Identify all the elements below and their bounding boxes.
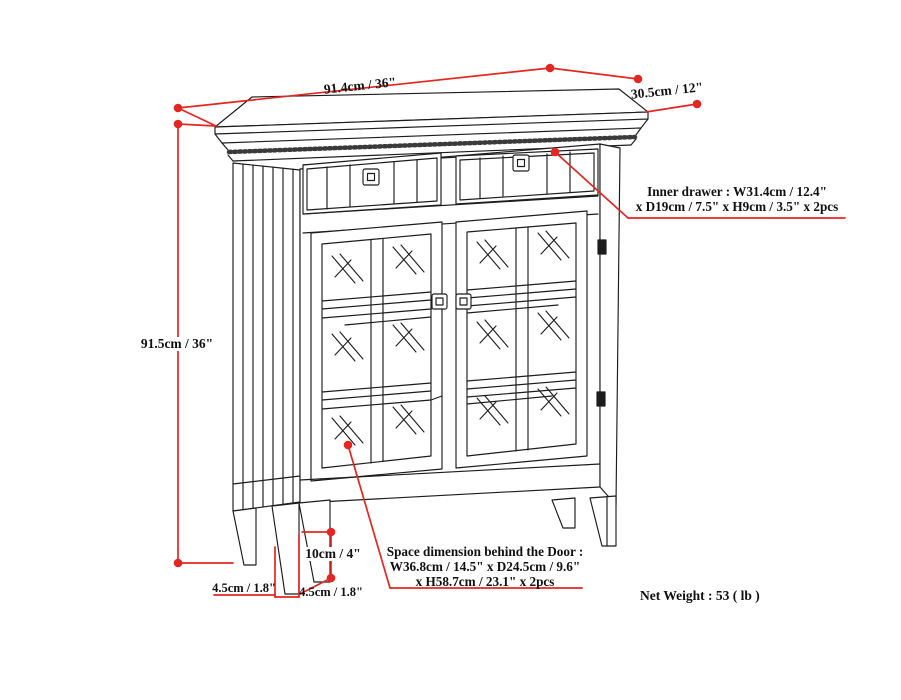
cabinet (215, 89, 648, 594)
inner-drawer-line2: x D19cm / 7.5" x H9cm / 3.5" x 2pcs (636, 199, 839, 214)
space-behind-door-line3: x H58.7cm / 23.1" x 2pcs (387, 574, 584, 589)
right-drawer[interactable] (456, 149, 598, 204)
left-drawer[interactable] (303, 153, 441, 214)
space-behind-door-callout: Space dimension behind the Door : W36.8c… (387, 544, 584, 589)
cabinet-left-side-panel (233, 163, 300, 511)
diagram-page: 91.4cm / 36" 30.5cm / 12" 91.5cm / 36" 1… (0, 0, 901, 700)
leg-width-right-label: 4.5cm / 1.8" (299, 585, 363, 599)
right-glass-door[interactable] (456, 211, 587, 468)
leg-height-label: 10cm / 4" (302, 547, 363, 561)
space-behind-door-line2: W36.8cm / 14.5" x D24.5cm / 9.6" (387, 559, 584, 574)
space-behind-door-line1: Space dimension behind the Door : (387, 544, 584, 559)
hinge-bottom (597, 392, 605, 406)
inner-drawer-line1: Inner drawer : W31.4cm / 12.4" (636, 184, 839, 199)
leg-width-left-label: 4.5cm / 1.8" (212, 581, 276, 595)
cabinet-line-art (0, 0, 901, 700)
left-glass-door[interactable] (311, 222, 442, 481)
side-height-label: 91.5cm / 36" (138, 337, 216, 351)
hinge-top (598, 240, 606, 254)
net-weight-label: Net Weight : 53 ( lb ) (640, 589, 760, 603)
inner-drawer-callout: Inner drawer : W31.4cm / 12.4" x D19cm /… (636, 184, 839, 214)
